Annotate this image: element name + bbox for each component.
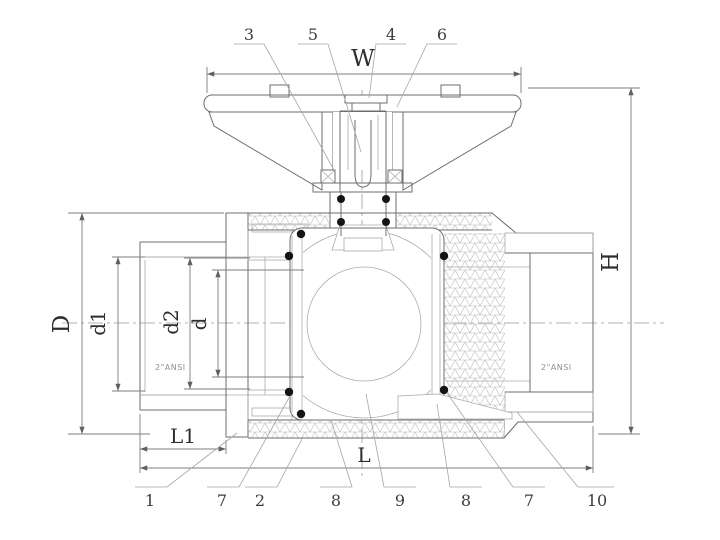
dimension-l1: L1 [140,414,226,473]
callout-label: 8 [461,491,471,510]
dimension-d: d [187,270,304,377]
dimension-l-label: L [357,443,370,467]
left-port-spec-label: 2"ANSI [155,363,186,372]
dimension-w: W [207,46,521,93]
callout-label: 10 [587,491,607,510]
callout-2: 2 [245,437,303,510]
o-ring-dot [440,252,448,260]
socket-end: 2"ANSI [505,233,593,412]
leader-line [245,437,303,487]
ball-valve-technical-drawing: 2"ANSI [0,0,720,540]
leader-line [397,44,457,107]
body-wall-top-right [396,213,492,230]
gland-collar [313,183,412,192]
dimension-l1-label: L1 [170,424,196,448]
hub-cavity [333,112,392,170]
dimension-d-outer-label: D [49,315,75,333]
o-ring-dot [297,230,305,238]
female-thread-top [505,233,593,253]
stem-slot-in-ball [344,238,382,251]
pipe-outline [140,242,226,410]
callout-label: 2 [255,491,265,510]
dimension-d1-label: d1 [86,310,110,336]
dimension-d2-label: d2 [159,309,183,335]
dimension-h: H [528,88,640,434]
callout-label: 8 [331,491,341,510]
callout-label: 4 [386,25,396,44]
o-ring-dot [382,195,390,203]
leader-line [234,44,334,170]
right-port-spec-label: 2"ANSI [541,363,572,372]
o-ring-dot [382,218,390,226]
callout-label: 7 [217,491,227,510]
dimension-d1: d1 [86,257,145,391]
callout-label: 9 [395,491,405,510]
o-ring-dot [440,386,448,394]
valve-drawing-canvas: 2"ANSI [0,0,720,540]
leader-line [517,412,614,487]
callout-label: 5 [308,25,318,44]
hub-wall-right [392,112,403,170]
hub-wall-left [322,112,333,170]
dimension-w-label: W [351,46,375,72]
dimension-h-label: H [598,252,624,272]
male-thread-top [140,242,226,257]
union-nut-section [226,213,248,437]
callout-label: 1 [145,491,155,510]
handle-web-right [403,112,516,190]
female-thread-bottom [505,392,593,412]
body-wall-right [444,233,505,412]
o-ring-dot [337,218,345,226]
o-ring-dot [285,388,293,396]
handle-web-left [209,112,322,190]
o-ring-dot [297,410,305,418]
callout-label: 3 [244,25,254,44]
callout-label: 6 [437,25,447,44]
callout-label: 7 [524,491,534,510]
male-thread-bottom [140,395,226,410]
dimension-d-label: d [187,317,211,330]
body-wall-top-left [248,213,329,230]
o-ring-dot [337,195,345,203]
body-wall-bottom [248,420,504,438]
body-wall-bottom-right [504,412,593,438]
o-ring-dot [285,252,293,260]
stem-top-boss [352,103,380,111]
stem-top-plate [345,95,387,103]
